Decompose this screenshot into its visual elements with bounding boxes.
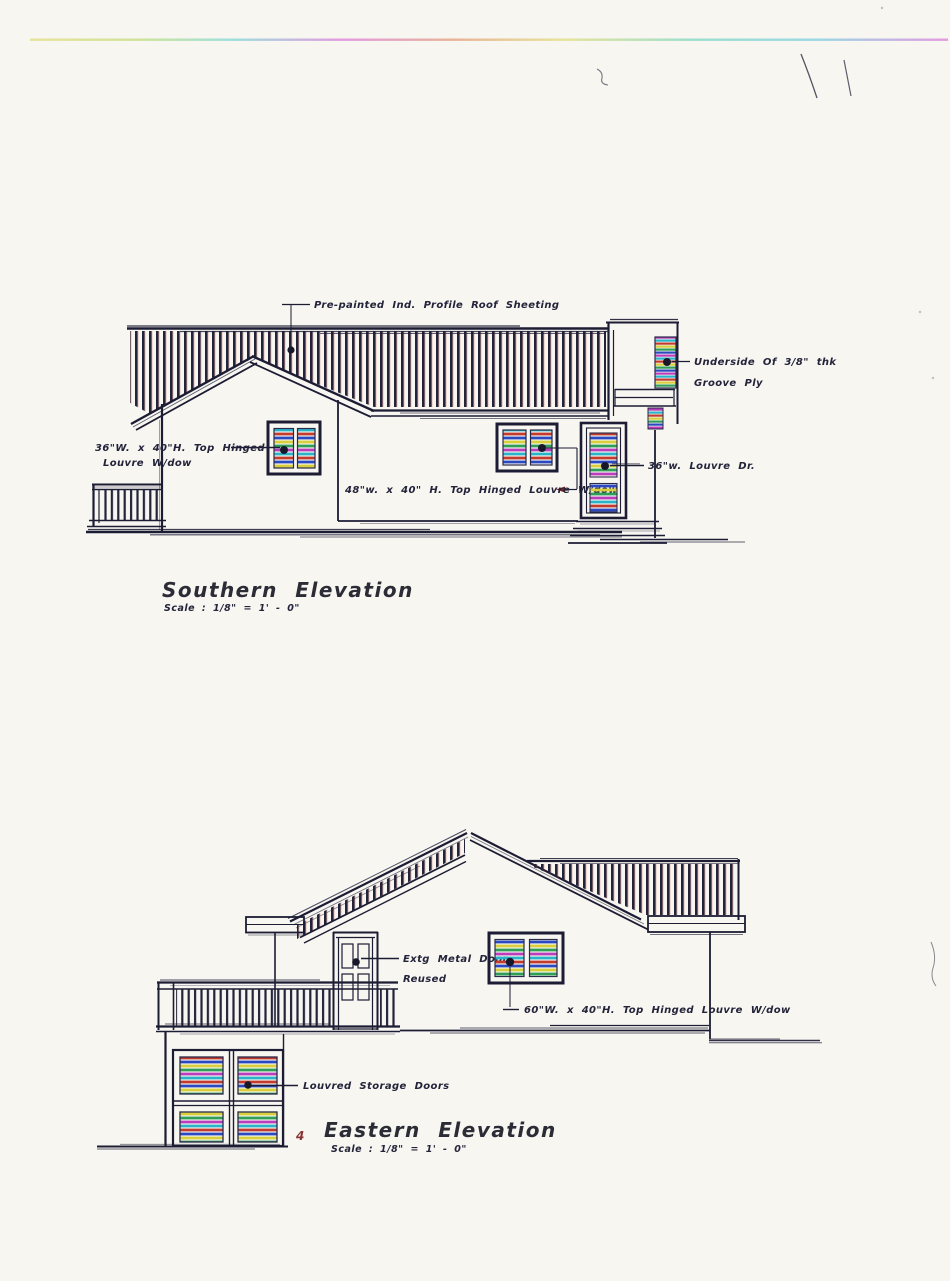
label-left-window: 36"W. x 40"H. Top Hinged — [95, 443, 265, 454]
roof-slope — [290, 833, 467, 922]
leader-dot — [280, 446, 288, 454]
scanned-drawing-sheet: Underside Of 3/8" thk Groove Ply Pre-pai… — [0, 0, 950, 1281]
louvre-panel — [503, 430, 526, 465]
label-metal-door: Reused — [403, 974, 447, 985]
label-louvre-door: 36"w. Louvre Dr. — [648, 461, 755, 472]
louvre-panel — [530, 940, 558, 977]
roof-slope — [300, 855, 465, 938]
roof-sheeting-hatch — [297, 839, 465, 939]
scratch-mark — [801, 54, 817, 98]
eastern-elevation: Extg Metal Door Reused 60"W. x 40"H. Top… — [97, 830, 822, 1156]
scan-artifacts — [30, 7, 948, 986]
louvre-panel — [590, 433, 617, 477]
door-pane — [358, 974, 369, 1000]
chroma-fringe — [293, 837, 468, 925]
louvre-panel — [298, 429, 316, 469]
louvre-panel — [238, 1057, 277, 1094]
label-left-window: Louvre W/dow — [103, 458, 192, 469]
sheet-marker: 4 — [295, 1129, 304, 1143]
label-storage-doors: Louvred Storage Doors — [303, 1081, 450, 1092]
eastern-scale: Scale : 1/8" = 1' - 0" — [331, 1144, 467, 1155]
southern-title: Southern Elevation — [162, 578, 414, 602]
louvre-panel — [590, 484, 617, 513]
leader-dot — [538, 444, 546, 452]
speck — [881, 7, 883, 9]
leader-dot — [506, 958, 514, 966]
label-groove-ply: Groove Ply — [694, 378, 763, 389]
scan-artifact-line — [30, 39, 948, 41]
chroma-fringe — [288, 830, 466, 919]
label-east-window: 60"W. x 40"H. Top Hinged Louvre W/dow — [524, 1005, 791, 1016]
leader-dot — [601, 462, 609, 470]
leader-dot — [352, 958, 360, 966]
scratch-mark — [931, 942, 936, 986]
door-pane — [342, 974, 353, 1000]
southern-scale: Scale : 1/8" = 1' - 0" — [164, 603, 300, 614]
eastern-title: Eastern Elevation — [324, 1118, 557, 1142]
speck — [932, 377, 934, 379]
door-pane — [342, 944, 353, 968]
roof-sheeting-hatch — [130, 331, 606, 414]
elevations-drawing: Underside Of 3/8" thk Groove Ply Pre-pai… — [0, 0, 950, 1281]
railing-balusters — [176, 990, 331, 1026]
louvre-panel — [180, 1112, 223, 1142]
southern-elevation: Underside Of 3/8" thk Groove Ply Pre-pai… — [86, 300, 837, 614]
label-groove-ply: Underside Of 3/8" thk — [694, 357, 837, 368]
scratch-mark — [844, 60, 851, 96]
label-roof-sheeting: Pre-painted Ind. Profile Roof Sheeting — [314, 300, 559, 311]
railing-balusters — [101, 490, 159, 520]
railing-balusters — [380, 990, 398, 1026]
scratch-mark — [597, 69, 608, 85]
leader-dot — [244, 1081, 252, 1089]
louvre-panel — [180, 1057, 223, 1094]
speck — [919, 311, 921, 313]
label-mid-window: 48"w. x 40" H. Top Hinged Louvre W/dow — [344, 485, 618, 496]
groove-ply-soffit — [648, 408, 663, 429]
leader-dot — [663, 358, 671, 366]
door-pane — [358, 944, 369, 968]
leader-dot — [287, 346, 294, 353]
roof-sheeting-hatch — [531, 864, 737, 915]
louvre-panel — [238, 1112, 277, 1142]
label-metal-door: Extg Metal Door — [403, 954, 509, 965]
